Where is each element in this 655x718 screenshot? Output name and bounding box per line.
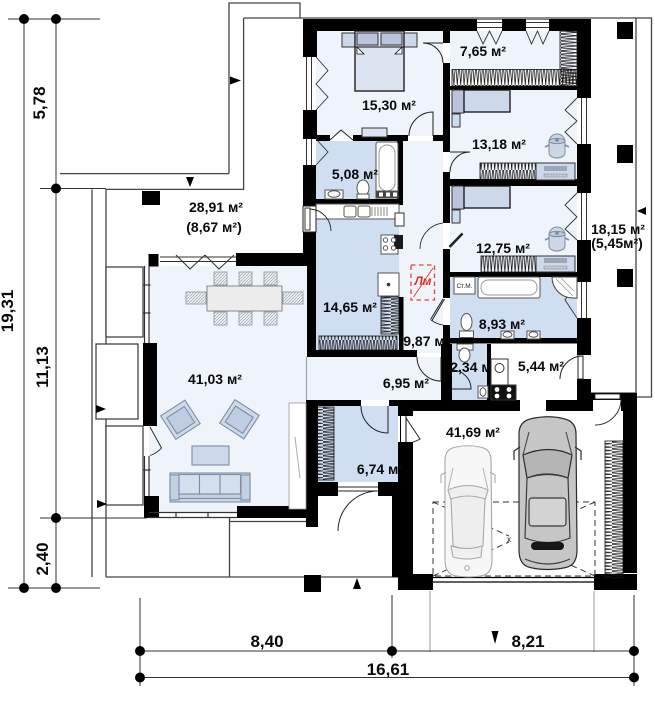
svg-text:5,78: 5,78	[30, 86, 49, 119]
svg-text:15,30 м²: 15,30 м²	[362, 97, 416, 113]
svg-text:5,44 м²: 5,44 м²	[518, 358, 564, 374]
svg-text:6,95 м²: 6,95 м²	[383, 375, 429, 391]
svg-text:11,13: 11,13	[33, 346, 52, 388]
svg-text:8,93 м²: 8,93 м²	[479, 316, 525, 332]
svg-text:13,18 м²: 13,18 м²	[472, 136, 526, 152]
svg-text:6,74 м²: 6,74 м²	[357, 461, 403, 477]
svg-text:8,40: 8,40	[250, 632, 283, 651]
svg-text:(5,45м²): (5,45м²)	[591, 235, 643, 251]
svg-text:7,65 м²: 7,65 м²	[460, 43, 506, 59]
svg-text:41,03 м²: 41,03 м²	[188, 371, 242, 387]
svg-text:12,75 м²: 12,75 м²	[476, 240, 530, 256]
svg-text:14,65 м²: 14,65 м²	[323, 299, 377, 315]
svg-text:Ст.М.: Ст.М.	[457, 283, 473, 290]
svg-text:28,91 м²: 28,91 м²	[189, 199, 243, 215]
svg-text:(8,67 м²): (8,67 м²)	[186, 219, 241, 235]
svg-text:8,21: 8,21	[511, 632, 544, 651]
svg-text:2,40: 2,40	[33, 542, 52, 575]
svg-text:41,69 м²: 41,69 м²	[446, 424, 500, 440]
svg-text:2,34 м: 2,34 м	[450, 359, 492, 375]
svg-text:x: x	[507, 535, 511, 544]
svg-text:9,87 м: 9,87 м	[403, 333, 445, 349]
svg-text:Лм: Лм	[413, 274, 431, 288]
svg-text:5,08 м²: 5,08 м²	[332, 166, 378, 182]
svg-text:16,61: 16,61	[367, 660, 410, 679]
svg-text:19,31: 19,31	[0, 290, 17, 333]
